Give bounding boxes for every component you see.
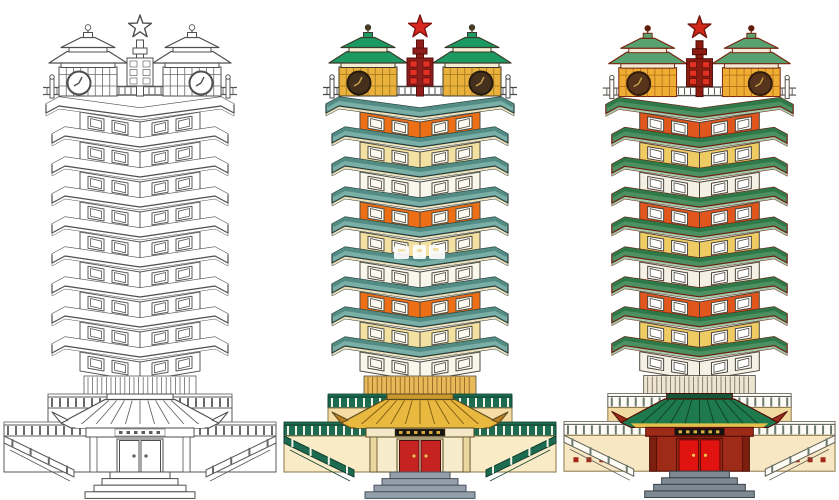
tower-figure-colored-deep xyxy=(560,0,839,500)
clock-turret-right xyxy=(433,25,511,96)
star-icon xyxy=(129,15,152,37)
clock-turret-right xyxy=(712,26,790,97)
tower-colored-warm xyxy=(280,0,560,500)
tower-floors xyxy=(606,98,793,381)
tower-floors xyxy=(46,97,234,381)
clock-face-icon xyxy=(627,72,650,95)
entrance-steps xyxy=(645,471,755,497)
entrance-plaque xyxy=(395,429,445,436)
entrance-plaque xyxy=(675,428,725,435)
tower-figure-line-art xyxy=(0,0,280,500)
star-icon xyxy=(409,15,432,37)
clock-turret-left xyxy=(609,26,687,97)
watermark xyxy=(394,245,445,259)
tower-line-art xyxy=(0,0,280,500)
clock-face-icon xyxy=(348,72,371,95)
clock-face-icon xyxy=(470,72,493,95)
clock-turret-left xyxy=(329,25,407,96)
clock-turret-left xyxy=(49,25,127,96)
illustration-canvas xyxy=(0,0,839,500)
entrance-steps xyxy=(85,472,195,498)
clock-face-icon xyxy=(749,72,772,95)
entrance-steps xyxy=(365,472,475,498)
tower-figure-colored-warm xyxy=(280,0,560,500)
clock-face-icon xyxy=(190,72,213,95)
tower-floors xyxy=(326,97,514,381)
clock-face-icon xyxy=(68,72,91,95)
entrance-plaque xyxy=(115,429,165,436)
star-icon xyxy=(688,16,711,38)
clock-turret-right xyxy=(153,25,231,96)
tower-colored-deep xyxy=(560,0,839,500)
